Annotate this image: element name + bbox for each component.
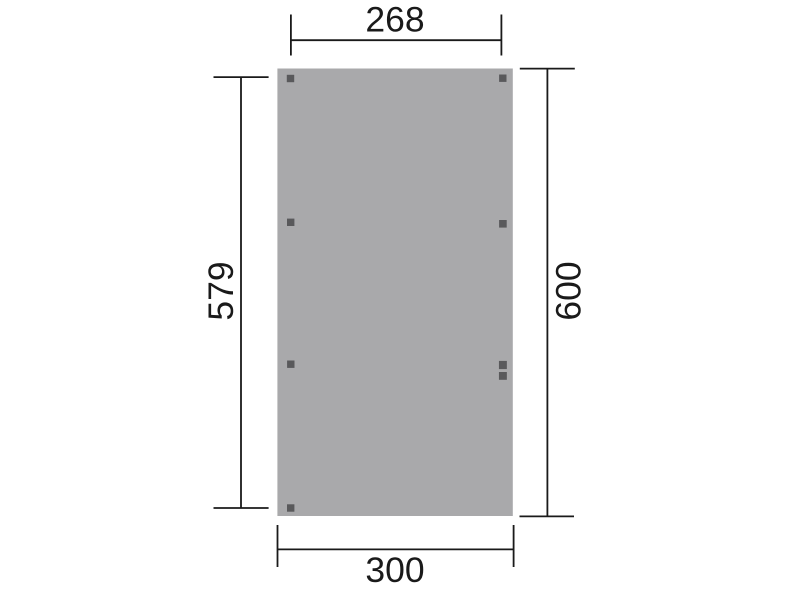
svg-text:268: 268 <box>365 0 424 40</box>
svg-text:579: 579 <box>201 261 241 320</box>
svg-text:600: 600 <box>549 261 589 320</box>
svg-text:300: 300 <box>365 550 424 590</box>
